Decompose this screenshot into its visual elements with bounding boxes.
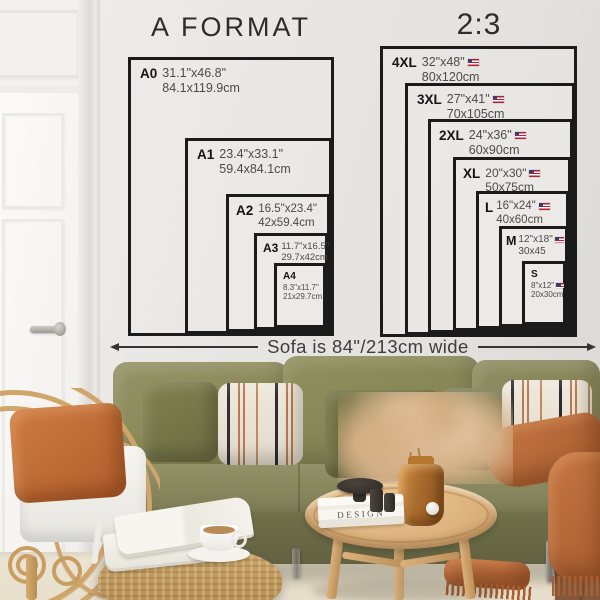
striped-pillow-left <box>218 383 303 465</box>
throw-fringe <box>552 576 600 596</box>
us-flag-icon <box>555 237 564 243</box>
candle-holder <box>384 493 395 512</box>
size-inches: 8.3"x11.7" <box>283 283 319 292</box>
size-inches: 31.1"x46.8" <box>162 66 226 81</box>
size-inches: 32"x48" <box>422 55 465 70</box>
size-inches: 12"x18" <box>518 234 552 246</box>
size-name: A4 <box>283 271 296 282</box>
size-cm: 21x29.7cm <box>283 292 322 301</box>
size-label-s: S 8"x12"20x30cm <box>525 264 563 300</box>
size-label-l: L 16"x24"40x60cm <box>479 194 566 227</box>
size-inches: 27"x41" <box>447 92 490 107</box>
size-cm: 60x90cm <box>469 143 526 158</box>
us-flag-icon <box>493 96 504 103</box>
size-inches: 16.5"x23.4" <box>258 203 317 217</box>
us-flag-icon <box>539 203 550 210</box>
size-cm: 29.7x42cm <box>281 252 329 263</box>
size-label-xl: XL 20"x30"50x75cm <box>456 160 568 194</box>
size-cm: 84.1x119.9cm <box>162 81 240 96</box>
door-panel-upper <box>2 113 64 209</box>
us-flag-icon <box>468 59 479 66</box>
table-leg <box>394 545 404 600</box>
size-label-4xl: 4XL 32"x48"80x120cm <box>383 49 574 85</box>
size-name: S <box>531 269 538 280</box>
size-name: 3XL <box>417 92 442 107</box>
size-cm: 59.4x84.1cm <box>219 162 291 177</box>
chair-coil <box>52 556 82 586</box>
sofa-width-annotation: Sofa is 84"/213cm wide <box>110 338 596 356</box>
decor-sphere <box>426 502 439 515</box>
size-name: L <box>485 200 493 215</box>
sofa-leg <box>292 548 300 578</box>
size-inches: 20"x30" <box>485 166 526 180</box>
candle-holder <box>370 489 383 512</box>
terracotta-pillow <box>9 402 127 504</box>
transom-molding <box>0 10 80 78</box>
size-rect-s: S 8"x12"20x30cm <box>522 261 566 325</box>
size-cm: 42x59.4cm <box>258 217 317 231</box>
arrow-line-left <box>119 346 258 348</box>
size-name: 2XL <box>439 128 464 143</box>
poster-size-guide-scene: A FORMAT 2:3 A0 31.1"x46.8"84.1x119.9cm … <box>0 0 600 600</box>
size-name: M <box>506 234 516 248</box>
size-label-m: M 12"x18"30x45 <box>502 229 565 258</box>
chair-leg <box>26 556 37 600</box>
us-flag-icon <box>529 170 540 177</box>
size-inches: 8"x12" <box>531 281 554 290</box>
size-label-a3: A3 11.7"x16.5"29.7x42cm <box>257 236 325 263</box>
size-inches: 24"x36" <box>469 128 512 143</box>
size-rect-a4: A4 8.3"x11.7"21x29.7cm <box>274 263 326 328</box>
us-flag-icon <box>515 132 526 139</box>
size-name: A1 <box>197 147 214 162</box>
arrow-line-right <box>478 346 587 348</box>
size-label-a1: A1 23.4"x33.1"59.4x84.1cm <box>188 141 329 177</box>
amber-glass-vase <box>398 464 444 526</box>
size-name: A3 <box>263 241 278 255</box>
door-handle-rosette <box>54 322 66 336</box>
coffee-surface <box>203 526 235 534</box>
arrow-right-icon <box>587 343 596 351</box>
size-label-a0: A0 31.1"x46.8"84.1x119.9cm <box>131 60 331 96</box>
size-inches: 23.4"x33.1" <box>219 147 283 162</box>
size-cm: 20x30cm <box>531 290 564 299</box>
size-label-a4: A4 8.3"x11.7"21x29.7cm <box>277 266 323 302</box>
size-label-a2: A2 16.5"x23.4"42x59.4cm <box>229 197 327 230</box>
size-inches: 11.7"x16.5" <box>281 241 329 252</box>
us-flag-icon <box>556 283 564 288</box>
sofa-width-label: Sofa is 84"/213cm wide <box>267 336 469 358</box>
size-name: A0 <box>140 66 157 81</box>
size-name: 4XL <box>392 55 417 70</box>
size-label-3xl: 3XL 27"x41"70x105cm <box>408 86 572 122</box>
a-format-title: A FORMAT <box>128 12 334 43</box>
ratio-2-3-title: 2:3 <box>380 8 578 42</box>
size-label-2xl: 2XL 24"x36"60x90cm <box>431 122 570 158</box>
arrow-left-icon <box>110 343 119 351</box>
size-name: A2 <box>236 203 253 218</box>
size-cm: 30x45 <box>518 246 563 258</box>
size-name: XL <box>463 166 480 181</box>
size-inches: 16"x24" <box>496 200 536 214</box>
terracotta-throw-drape <box>548 452 600 582</box>
